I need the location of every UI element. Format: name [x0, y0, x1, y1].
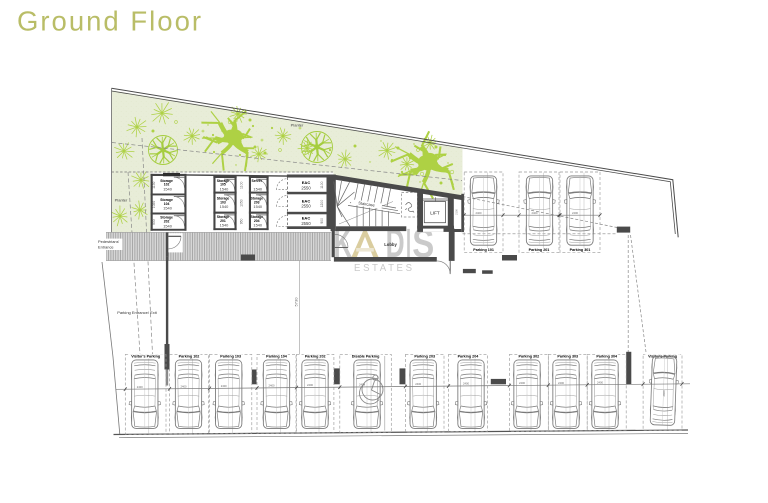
svg-text:Parking 303: Parking 303 [557, 355, 578, 359]
svg-text:1100: 1100 [240, 182, 244, 189]
svg-text:2550: 2550 [301, 204, 311, 209]
svg-text:Planter: Planter [115, 198, 128, 203]
svg-text:Parking 302: Parking 302 [518, 355, 539, 359]
svg-text:E S T A T E S: E S T A T E S [354, 262, 412, 274]
svg-text:2400: 2400 [415, 382, 421, 386]
svg-text:2400: 2400 [597, 380, 603, 384]
svg-text:EAC: EAC [302, 216, 311, 221]
svg-text:2550: 2550 [301, 185, 311, 190]
svg-text:1540: 1540 [220, 223, 229, 228]
svg-text:2400: 2400 [307, 383, 313, 387]
svg-text:2400: 2400 [137, 385, 143, 389]
svg-text:2400: 2400 [519, 381, 525, 385]
svg-text:Parking 301: Parking 301 [570, 248, 591, 252]
svg-text:Lobby: Lobby [384, 242, 397, 247]
svg-text:1540: 1540 [220, 186, 229, 191]
svg-text:Parking 304: Parking 304 [596, 355, 618, 359]
svg-text:Disable Parking: Disable Parking [352, 355, 380, 359]
svg-text:2400: 2400 [463, 382, 469, 386]
svg-text:1540: 1540 [253, 186, 262, 191]
svg-text:950: 950 [240, 219, 244, 225]
svg-text:1540: 1540 [163, 223, 172, 228]
svg-text:2400: 2400 [476, 211, 482, 215]
svg-text:Parking 202: Parking 202 [305, 355, 326, 359]
svg-text:Visitor's Parking: Visitor's Parking [131, 355, 160, 359]
svg-text:Ground Floor: Ground Floor [17, 6, 203, 37]
svg-text:1540: 1540 [220, 204, 229, 209]
svg-text:930: 930 [152, 219, 156, 225]
svg-text:2400: 2400 [662, 390, 666, 396]
svg-text:Parking 104: Parking 104 [266, 355, 288, 359]
svg-text:1030: 1030 [152, 201, 156, 209]
svg-text:1540: 1540 [253, 223, 262, 228]
svg-text:2400: 2400 [572, 211, 578, 215]
svg-text:1540: 1540 [253, 204, 262, 209]
svg-text:1050: 1050 [240, 199, 244, 207]
svg-text:Parking 203: Parking 203 [414, 355, 435, 359]
svg-text:Parking 103: Parking 103 [220, 355, 241, 359]
svg-text:1540: 1540 [163, 206, 172, 211]
svg-text:2400: 2400 [269, 384, 275, 388]
svg-text:EAC: EAC [302, 198, 311, 203]
svg-text:Pedestrians': Pedestrians' [98, 239, 120, 244]
svg-text:2400: 2400 [532, 211, 538, 215]
svg-text:Parking 102: Parking 102 [179, 355, 200, 359]
svg-text:LIFT: LIFT [430, 211, 440, 216]
svg-text:2400: 2400 [181, 384, 187, 388]
svg-text:900: 900 [320, 218, 324, 224]
svg-text:Parking 101: Parking 101 [473, 248, 494, 252]
svg-text:EAC: EAC [302, 180, 311, 185]
svg-text:Parking Entrance/ Exit: Parking Entrance/ Exit [117, 310, 157, 315]
svg-text:1200: 1200 [320, 200, 324, 208]
svg-text:2400: 2400 [221, 384, 227, 388]
svg-text:1100: 1100 [320, 181, 324, 188]
svg-text:Planter: Planter [291, 123, 304, 128]
svg-text:2400: 2400 [558, 381, 564, 385]
svg-text:1130: 1130 [152, 182, 156, 189]
svg-text:1540: 1540 [163, 186, 172, 191]
svg-text:Parking 204: Parking 204 [458, 355, 480, 359]
svg-text:2550: 2550 [301, 221, 311, 226]
svg-text:Entrance: Entrance [98, 245, 114, 250]
svg-text:2100: 2100 [455, 209, 459, 215]
svg-text:Parking 201: Parking 201 [529, 248, 550, 252]
svg-text:5730: 5730 [293, 297, 298, 307]
